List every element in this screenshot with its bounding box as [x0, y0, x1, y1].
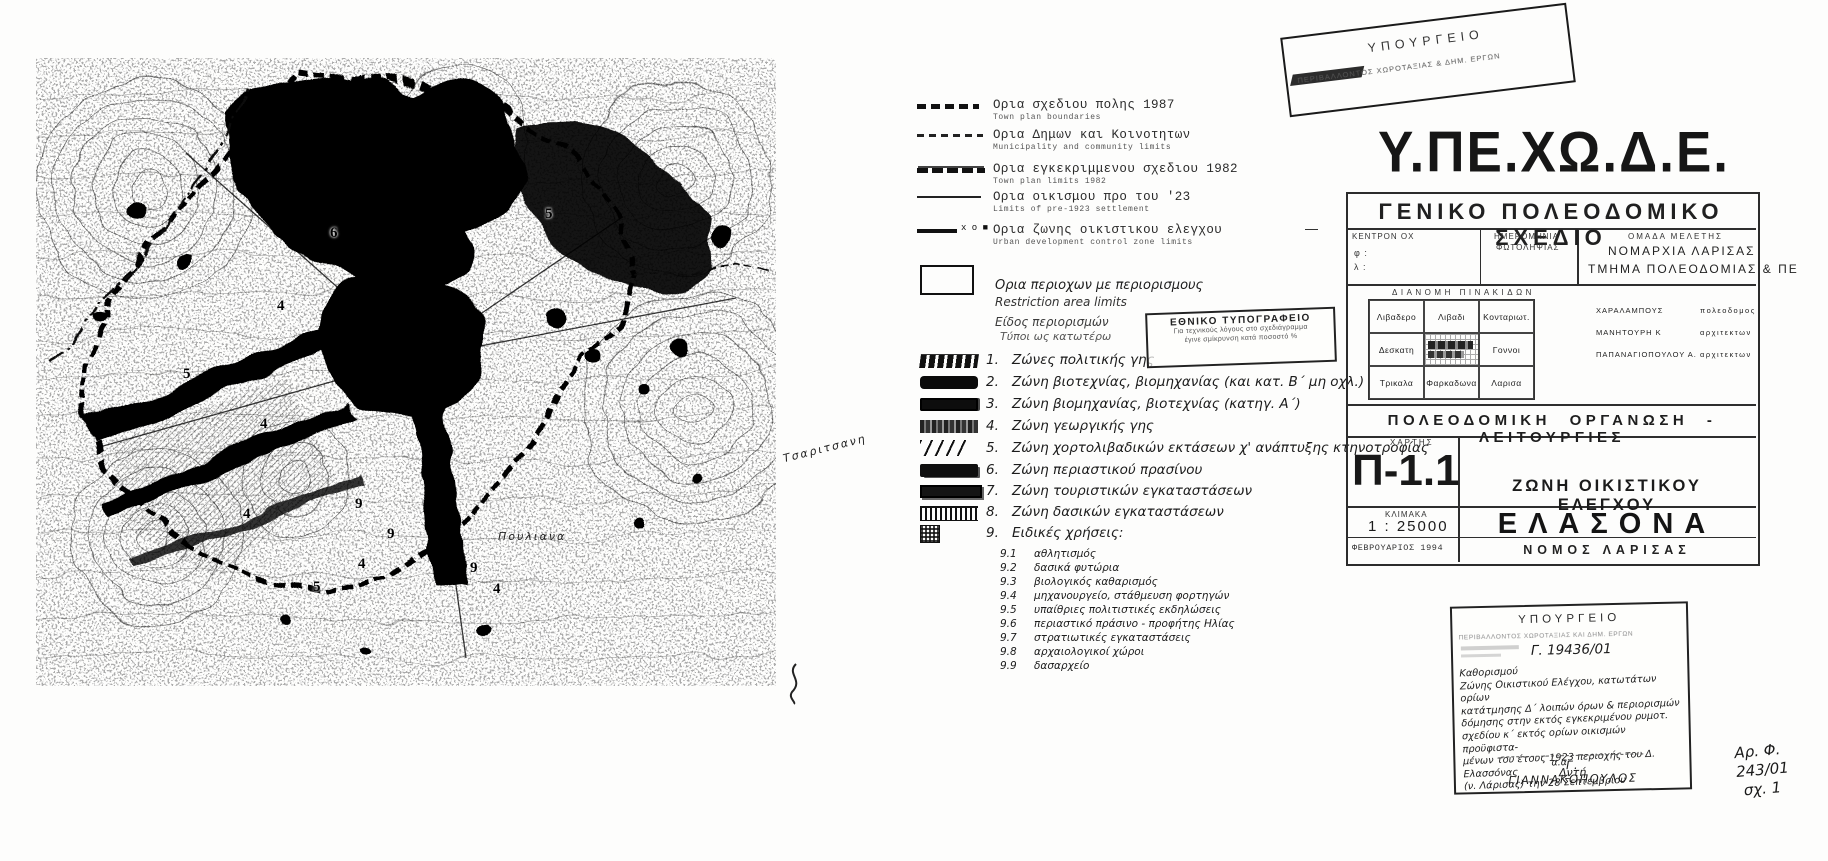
staff-name: ΧΑΡΑΛΑΜΠΟΥΣ — [1596, 306, 1663, 315]
special-use-number: 9.4 — [1000, 590, 1017, 602]
map-place-label: Τσαριτσανη — [782, 432, 868, 465]
zone-label: Ζώνη βιομηχανίας, βιοτεχνίας (κατηγ. Α΄) — [1012, 396, 1301, 412]
restriction-label-en: Restriction area limits — [995, 295, 1127, 309]
legend-label-en: Urban development control zone limits — [993, 238, 1193, 247]
special-use-label: αθλητισμός — [1034, 548, 1096, 560]
ministry-acronym: Υ.ΠΕ.ΧΩ.Δ.Ε. — [1352, 120, 1756, 186]
approval-department: ΠΕΡΙΒΑΛΛΟΝΤΟΣ ΧΩΡΟΤΑΞΙΑΣ ΚΑΙ ΔΗΜ. ΕΡΓΩΝ — [1459, 629, 1683, 641]
legend-zone-row: 8. Ζώνη δασικών εγκαταστάσεων — [920, 504, 1420, 524]
staff-role: αρχιτεκτων — [1700, 328, 1752, 337]
boundary-line-symbol — [917, 196, 981, 198]
zone-swatch — [920, 376, 978, 389]
zone-number: 3. — [986, 396, 999, 412]
zone-number: 9. — [986, 525, 999, 541]
lambda-label: λ : — [1354, 262, 1367, 272]
restriction-area-symbol — [920, 265, 974, 295]
special-use-number: 9.2 — [1000, 562, 1017, 574]
legend-zone-row: 7. Ζώνη τουριστικών εγκαταστάσεων — [920, 483, 1420, 503]
legend-label-gr: Ορια εγκεκριμμενου σχεδιου 1982 — [993, 162, 1238, 176]
legend-zone-row: 6. Ζώνη περιαστικού πρασίνου — [920, 462, 1420, 482]
map-code: Π-1.1 — [1352, 446, 1452, 496]
sheet-cell: Λαρισα — [1479, 366, 1534, 399]
scanned-map — [36, 58, 776, 686]
zone-label: Ζώνη δασικών εγκαταστάσεων — [1012, 504, 1224, 520]
sheet-index-title: ΔΙΑΝΟΜΗ ΠΙΝΑΚΙΔΩΝ — [1392, 288, 1535, 297]
zone-swatch — [920, 525, 940, 543]
zone-number: 6. — [986, 462, 999, 478]
special-use-number: 9.5 — [1000, 604, 1017, 616]
legend-zone-row: 9. Ειδικές χρήσεις: — [920, 525, 1420, 545]
zone-swatch — [920, 398, 978, 411]
special-use-number: 9.9 — [1000, 660, 1017, 672]
legend-label-en: Town plan boundaries — [993, 113, 1101, 122]
sheet-cell: Φαρκαδωνα — [1424, 366, 1479, 399]
zoe-line-trail-dash: — — [1305, 221, 1318, 236]
restriction-label-gr: Ορια περιοχων με περιορισμους — [995, 278, 1203, 293]
zone-number: 5. — [986, 440, 999, 456]
sheet-cell: Κονταριωτ. — [1479, 300, 1534, 333]
boundary-line-symbol — [917, 168, 985, 173]
zone-swatch — [920, 506, 978, 521]
zone-swatch — [920, 464, 978, 477]
sheet-cell: Τρικαλα — [1369, 366, 1424, 399]
national-press-stamp: ΕΘΝΙΚΟ ΤΥΠΟΓΡΑΦΕΙΟ Για τεχνικούς λόγους … — [1145, 307, 1337, 369]
zone-swatch — [919, 354, 979, 368]
special-use-label: δασαρχείο — [1034, 660, 1089, 672]
zone-number: 4. — [986, 418, 999, 434]
zone-label: Ζώνες πολιτικής γης — [1012, 352, 1154, 368]
legend-label-gr: Ορια ζωνης οικιστικου ελεγχου — [993, 223, 1222, 237]
legend-label-en: Limits of pre-1923 settlement — [993, 205, 1150, 214]
special-use-label: περιαστικό πράσινο - προφήτης Ηλίας — [1034, 618, 1235, 630]
protocol-number: Γ. 19436/01 — [1531, 641, 1612, 659]
zone-label: Ζώνη τουριστικών εγκαταστάσεων — [1012, 483, 1252, 499]
department-label: ΤΜΗΜΑ ΠΟΛΕΟΔΟΜΙΑΣ & ΠΕ — [1588, 262, 1799, 276]
boundary-line-symbol — [917, 229, 957, 233]
special-use-number: 9.3 — [1000, 576, 1017, 588]
staff-role: αρχιτεκτων — [1700, 350, 1752, 359]
special-use-number: 9.6 — [1000, 618, 1017, 630]
legend-label-gr: Ορια σχεδιου πολης 1987 — [993, 98, 1175, 112]
special-use-label: αρχαιολογικοί χώροι — [1034, 646, 1144, 658]
kentron-label: ΚΕΝΤΡΟΝ ΟΧ — [1352, 232, 1414, 241]
sheet-cell: Γοννοι — [1479, 333, 1534, 366]
staff-name: ΠΑΠΑΝΑΓΙΟΠΟΥΛΟΥ Α. — [1596, 350, 1697, 359]
zone-label: Ειδικές χρήσεις: — [1012, 525, 1123, 541]
legend-label-gr: Ορια οικισμου προ του '23 — [993, 190, 1191, 204]
zone-number: 2. — [986, 374, 999, 390]
approval-header: ΥΠΟΥΡΓΕΙΟ — [1452, 610, 1686, 627]
sheet-cell: Λιβαδερο — [1369, 300, 1424, 333]
staff-role: πολεοδομος — [1700, 306, 1756, 315]
staff-name: ΜΑΝΗΤΟΥΡΗ Κ — [1596, 328, 1662, 337]
restriction-note-1: Είδος περιορισμών — [995, 315, 1109, 329]
legend-zone-row: 4. Ζώνη γεωργικής γης — [920, 418, 1420, 438]
boundary-line-symbol — [917, 104, 979, 109]
special-use-number: 9.1 — [1000, 548, 1017, 560]
pen-scribble — [782, 662, 812, 706]
sheet-cell: Λιβαδι — [1424, 300, 1479, 333]
zone-swatch — [920, 440, 968, 456]
phi-label: φ : — [1354, 248, 1368, 258]
zone-swatch — [920, 420, 978, 433]
region-name: ΝΟΜΟΣ ΛΑΡΙΣΑΣ — [1462, 543, 1752, 557]
legend-label-en: Municipality and community limits — [993, 143, 1171, 152]
prefecture-label: ΝΟΜΑΡΧΙΑ ΛΑΡΙΣΑΣ — [1608, 244, 1756, 258]
faded-text-smear — [1461, 654, 1501, 658]
legend-label-gr: Ορια Δημων και Κοινοτητων — [993, 128, 1191, 142]
signature-name: Γ. ΓΙΑΝΝΑΚΟΠΟΥΛΟΣ — [1501, 753, 1644, 787]
photo-date-label-2: ΦΩΤΟΛΗΨΙΑΣ — [1496, 243, 1560, 252]
faded-text-smear — [1461, 645, 1519, 650]
boundary-line-symbol — [917, 134, 983, 137]
special-use-label: μηχανουργείο, στάθμευση φορτηγών — [1034, 590, 1229, 602]
team-label: ΟΜΑΔΑ ΜΕΛΕΤΗΣ — [1628, 232, 1723, 241]
photo-date-label-1: ΗΜΕΡΟΜΗΝΙΑ — [1494, 232, 1559, 241]
restriction-note-2: Τύποι ως κατωτέρω — [1000, 330, 1111, 343]
city-name: ΕΛΑΣΟΝΑ — [1462, 508, 1752, 541]
special-use-label: στρατιωτικές εγκαταστάσεις — [1034, 632, 1191, 644]
zone-number: 7. — [986, 483, 999, 499]
legend-zone-row: 2. Ζώνη βιοτεχνίας, βιομηχανίας (και κατ… — [920, 374, 1420, 394]
ministry-stamp: ΥΠΟΥΡΓΕΙΟ ΠΕΡΙΒΑΛΛΟΝΤΟΣ ΧΩΡΟΤΑΞΙΑΣ & ΔΗΜ… — [1280, 3, 1576, 118]
map-scan-svg — [36, 58, 776, 686]
ministry-stamp-line1: ΥΠΟΥΡΓΕΙΟ — [1284, 17, 1568, 66]
special-use-label: βιολογικός καθαρισμός — [1034, 576, 1158, 588]
special-use-label: δασικά φυτώρια — [1034, 562, 1119, 574]
scanned-plan-sheet: 654544994594ΠουλιαναΤσαριτσανη Ορια σχεδ… — [0, 0, 1828, 861]
sheet-cell-current — [1424, 333, 1479, 366]
sheet-index-grid: Λιβαδερο Λιβαδι Κονταριωτ. Δεσκατη Γοννο… — [1368, 299, 1535, 400]
zoe-line-marks: x o ■ — [961, 223, 988, 233]
zone-number: 1. — [986, 352, 999, 368]
zone-label: Ζώνη περιαστικού πρασίνου — [1012, 462, 1202, 478]
zone-number: 8. — [986, 504, 999, 520]
zone-label: Ζώνη γεωργικής γης — [1012, 418, 1154, 434]
legend-label-en: Town plan limits 1982 — [993, 177, 1106, 186]
approval-stamp: ΥΠΟΥΡΓΕΙΟ ΠΕΡΙΒΑΛΛΟΝΤΟΣ ΧΩΡΟΤΑΞΙΑΣ ΚΑΙ Δ… — [1450, 601, 1692, 794]
special-use-number: 9.8 — [1000, 646, 1017, 658]
special-use-number: 9.7 — [1000, 632, 1017, 644]
legend-zone-row: 5. Ζώνη χορτολιβαδικών εκτάσεων χ' ανάπτ… — [920, 440, 1420, 460]
special-use-label: υπαίθριες πολιτιστικές εκδηλώσεις — [1034, 604, 1221, 616]
zone-swatch — [920, 485, 982, 498]
scale-value: 1 : 25000 — [1368, 518, 1449, 535]
zone-label: Ζώνη βιοτεχνίας, βιομηχανίας (και κατ. Β… — [1012, 374, 1364, 390]
plan-date: ΦΕΒΡΟΥΑΡΙΟΣ 1994 — [1352, 543, 1443, 553]
file-reference: Αρ. Φ. 243/01 σχ. 1 — [1734, 736, 1828, 801]
sheet-cell: Δεσκατη — [1369, 333, 1424, 366]
legend-zone-row: 3. Ζώνη βιομηχανίας, βιοτεχνίας (κατηγ. … — [920, 396, 1420, 416]
